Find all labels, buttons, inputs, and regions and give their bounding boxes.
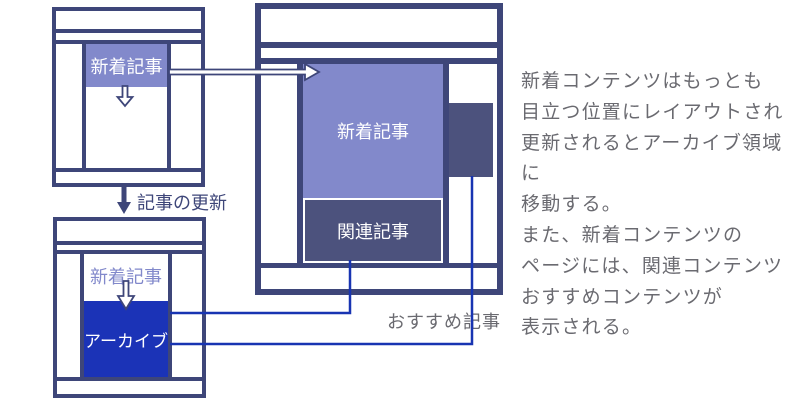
update-flow-label: 記事の更新 (137, 189, 227, 215)
right-column-divider (167, 44, 171, 168)
description-line: 移動する。 (521, 189, 800, 220)
wireframe-featured-page: 新着記事 関連記事 (255, 3, 503, 295)
archive-label: アーカイブ (84, 327, 168, 352)
related-articles-box: 関連記事 (303, 198, 443, 263)
header-bar (56, 11, 201, 29)
related-articles-label: 関連記事 (337, 218, 409, 244)
footer-bar (57, 381, 202, 394)
new-article-label: 新着記事 (91, 53, 163, 79)
description-line: また、新着コンテンツの (521, 220, 800, 251)
description-line: 目立つ位置にレイアウトされ (521, 97, 800, 128)
wireframe-before-update: 新着記事 (52, 7, 205, 187)
description-line: 新着コンテンツはもっとも (521, 66, 800, 97)
description-line: 表示される。 (521, 312, 800, 343)
new-article-label: 新着記事 (337, 118, 409, 144)
new-article-feature-box: 新着記事 (303, 64, 443, 198)
recommend-label: おすすめ記事 (387, 308, 501, 334)
recommended-articles-box (449, 103, 493, 177)
description-line: ページには、関連コンテンツ (521, 251, 800, 282)
right-column-divider (168, 254, 172, 377)
layout-diagram: 新着記事 新着記事 アーカイブ 新着記事 関連記事 (0, 0, 800, 400)
footer-bar (56, 172, 201, 183)
nav-divider (57, 250, 202, 254)
nav-bar (261, 48, 497, 58)
archive-box: アーカイブ (84, 301, 168, 377)
nav-bar (56, 33, 201, 40)
footer-bar (261, 268, 497, 289)
new-article-ghost-label: 新着記事 (84, 263, 168, 289)
description-text: 新着コンテンツはもっとも 目立つ位置にレイアウトされ 更新されるとアーカイブ領域… (521, 66, 800, 343)
wireframe-after-update: 新着記事 アーカイブ (53, 217, 206, 398)
description-line: 更新されるとアーカイブ領域に (521, 128, 800, 190)
new-article-box: 新着記事 (86, 44, 167, 87)
update-down-arrow-icon (117, 186, 131, 214)
description-line: おすすめコンテンツが (521, 282, 800, 313)
header-bar (57, 221, 202, 241)
header-bar (261, 9, 497, 42)
